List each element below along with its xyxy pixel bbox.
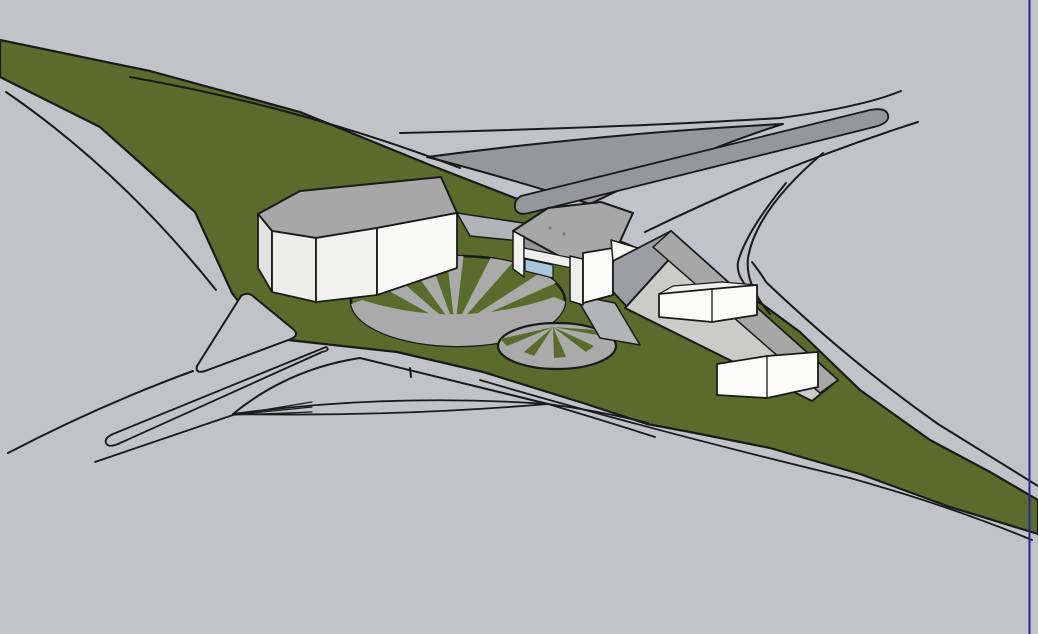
mid-building-roof-vent-1 [548, 226, 551, 229]
left-building-face-a [272, 231, 316, 302]
site-model-canvas[interactable] [0, 0, 1038, 634]
mid-building-pier-right [570, 256, 583, 305]
model-viewport[interactable] [0, 0, 1038, 634]
small-post-mark [410, 368, 411, 377]
mid-building-front-wall [583, 248, 613, 303]
mid-building-pier-left [513, 231, 524, 277]
left-building-face-b [316, 228, 377, 302]
mid-building-roof-vent-2 [562, 232, 565, 235]
